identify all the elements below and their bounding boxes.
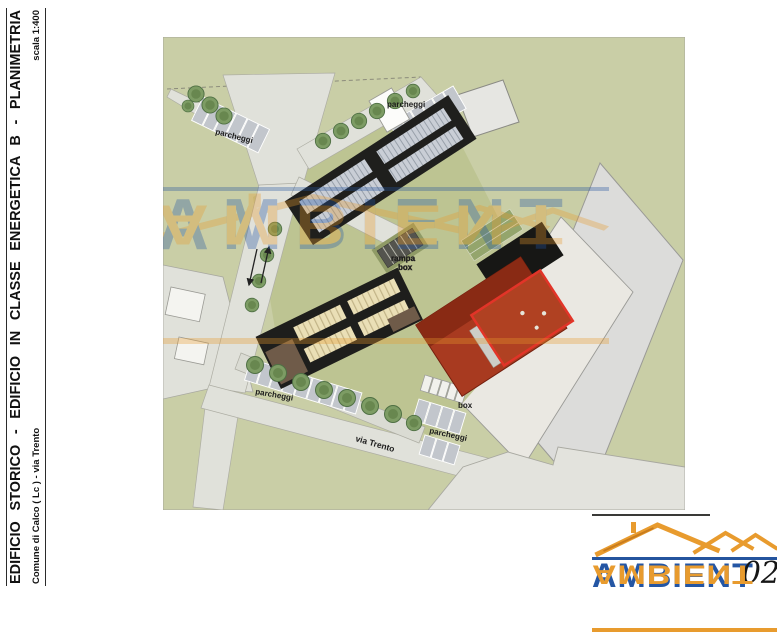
drawing-subtitle-row: Comune di Calco ( Lc ) - via Trento scal… <box>31 10 42 584</box>
roof-icon <box>592 517 777 557</box>
site-plan: parcheggi parcheggi parcheggi parcheggi … <box>163 37 685 510</box>
label-rampa-box: box <box>398 263 413 272</box>
drawing-title: EDIFICIO STORICO - EDIFICIO IN CLASSE EN… <box>9 10 25 584</box>
site-plan-drawing: parcheggi parcheggi parcheggi parcheggi … <box>163 37 685 510</box>
page: EDIFICIO STORICO - EDIFICIO IN CLASSE EN… <box>0 0 777 600</box>
logo-orange-bar <box>592 628 777 632</box>
logo-top-line <box>592 514 710 516</box>
label-box: box <box>458 401 473 410</box>
label-rampa: rampa <box>391 254 416 263</box>
drawing-location: Comune di Calco ( Lc ) - via Trento <box>31 428 42 584</box>
drawing-scale: scala 1:400 <box>31 10 42 61</box>
title-block: EDIFICIO STORICO - EDIFICIO IN CLASSE EN… <box>6 8 46 586</box>
logo-reflection: AMBIENT <box>592 559 777 589</box>
company-logo: AMBIENT 02 AMBIENT <box>592 514 777 632</box>
label-parcheggi-top: parcheggi <box>387 100 425 109</box>
